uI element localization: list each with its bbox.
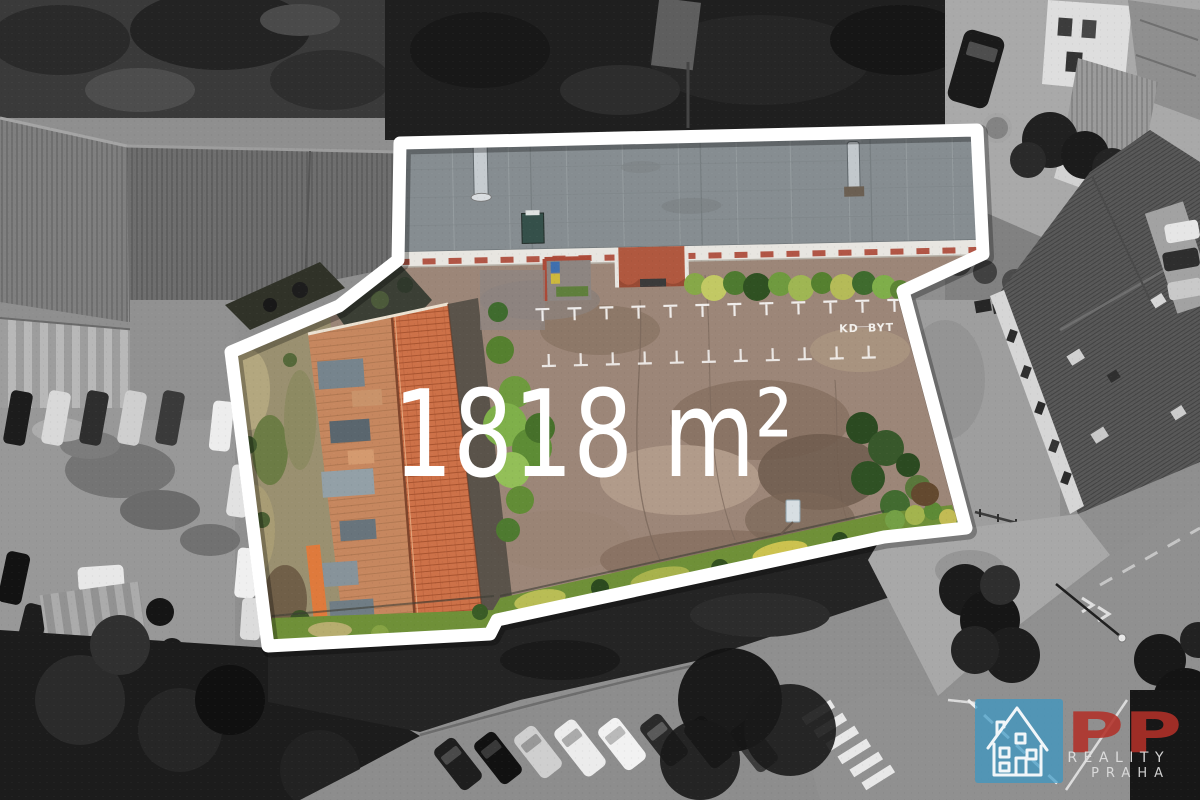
logo-line2: PRAHA: [1091, 766, 1170, 781]
aerial-photo-canvas: KD BYT 1818 m² PP REALITY PRAHA: [0, 0, 1200, 800]
logo-line1: REALITY: [1067, 750, 1170, 766]
aerial-photo: KD BYT 1818 m² PP REALITY PRAHA: [0, 0, 1200, 800]
area-label: 1818 m²: [393, 366, 793, 505]
